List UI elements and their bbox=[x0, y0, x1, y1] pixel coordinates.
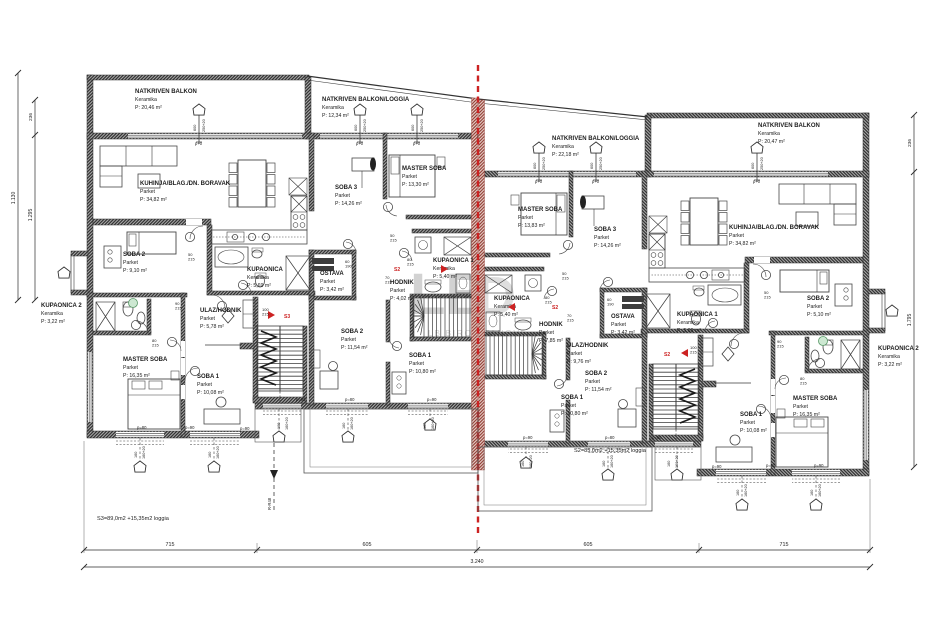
svg-text:SOBA 1: SOBA 1 bbox=[197, 374, 220, 380]
svg-text:215: 215 bbox=[175, 306, 182, 311]
svg-text:160+20: 160+20 bbox=[285, 417, 289, 430]
svg-text:Keramika: Keramika bbox=[247, 275, 269, 281]
svg-text:236: 236 bbox=[907, 139, 913, 147]
svg-text:P: 4,02 m²: P: 4,02 m² bbox=[390, 296, 414, 302]
svg-text:Keramika: Keramika bbox=[135, 97, 157, 103]
svg-text:KUPAONICA 1: KUPAONICA 1 bbox=[433, 258, 474, 264]
svg-text:P: 5,69 m²: P: 5,69 m² bbox=[247, 283, 271, 289]
svg-text:p+0: p+0 bbox=[753, 179, 761, 184]
svg-text:715: 715 bbox=[780, 542, 789, 548]
svg-text:215: 215 bbox=[385, 280, 392, 285]
svg-text:R-R48: R-R48 bbox=[267, 497, 272, 510]
svg-text:600: 600 bbox=[354, 125, 358, 131]
svg-text:Parket: Parket bbox=[197, 382, 213, 388]
svg-text:215: 215 bbox=[188, 257, 195, 262]
svg-text:KUPAONICA 2: KUPAONICA 2 bbox=[878, 346, 919, 352]
svg-text:P: 22,18 m²: P: 22,18 m² bbox=[552, 152, 579, 158]
svg-text:160: 160 bbox=[342, 423, 346, 429]
svg-text:p=90: p=90 bbox=[427, 397, 437, 402]
svg-text:215: 215 bbox=[390, 238, 397, 243]
svg-text:ULAZ/HODNIK: ULAZ/HODNIK bbox=[567, 343, 609, 349]
svg-text:SOBA 2: SOBA 2 bbox=[123, 252, 146, 258]
svg-text:Parket: Parket bbox=[341, 337, 357, 343]
svg-text:Parket: Parket bbox=[807, 304, 823, 310]
svg-text:p+0: p+0 bbox=[413, 141, 421, 146]
svg-text:SOBA 2: SOBA 2 bbox=[341, 329, 364, 335]
svg-text:P: 10,08 m²: P: 10,08 m² bbox=[740, 428, 767, 434]
svg-text:236: 236 bbox=[28, 113, 34, 121]
svg-text:160: 160 bbox=[134, 452, 138, 458]
svg-text:Parket: Parket bbox=[123, 260, 139, 266]
svg-text:P: 34,82 m²: P: 34,82 m² bbox=[140, 197, 167, 203]
svg-text:Parket: Parket bbox=[740, 420, 756, 426]
svg-text:p=90: p=90 bbox=[296, 397, 306, 402]
svg-text:P: 5,78 m²: P: 5,78 m² bbox=[200, 324, 224, 330]
svg-text:160+20: 160+20 bbox=[610, 455, 614, 468]
svg-text:p=90: p=90 bbox=[185, 425, 195, 430]
svg-text:600: 600 bbox=[590, 163, 594, 169]
svg-text:p+0: p+0 bbox=[356, 141, 364, 146]
svg-text:215: 215 bbox=[777, 344, 784, 349]
svg-text:p=90: p=90 bbox=[240, 426, 250, 431]
svg-text:P: 14,26 m²: P: 14,26 m² bbox=[594, 243, 621, 249]
svg-text:OSTAVA: OSTAVA bbox=[320, 271, 344, 277]
svg-text:250+20: 250+20 bbox=[363, 119, 367, 132]
svg-text:p=80: p=80 bbox=[605, 435, 615, 440]
svg-text:P: 20,47 m²: P: 20,47 m² bbox=[758, 139, 785, 145]
svg-text:Parket: Parket bbox=[335, 193, 351, 199]
svg-text:215: 215 bbox=[152, 343, 159, 348]
svg-text:p=80: p=80 bbox=[345, 397, 355, 402]
svg-text:HODNIK: HODNIK bbox=[390, 280, 414, 286]
svg-text:600: 600 bbox=[533, 163, 537, 169]
svg-text:P: 5,69 m²: P: 5,69 m² bbox=[677, 328, 701, 334]
svg-text:Parket: Parket bbox=[200, 316, 216, 322]
svg-text:600: 600 bbox=[411, 125, 415, 131]
svg-text:215: 215 bbox=[262, 312, 269, 317]
svg-text:160+20: 160+20 bbox=[431, 417, 435, 430]
svg-text:160+20: 160+20 bbox=[818, 484, 822, 497]
svg-text:P: 11,54 m²: P: 11,54 m² bbox=[585, 387, 612, 393]
svg-text:SOBA 2: SOBA 2 bbox=[807, 296, 830, 302]
svg-text:160: 160 bbox=[736, 490, 740, 496]
svg-text:P: 3,22 m²: P: 3,22 m² bbox=[878, 362, 902, 368]
svg-text:215: 215 bbox=[407, 262, 414, 267]
svg-text:MASTER SOBA: MASTER SOBA bbox=[123, 357, 168, 363]
svg-text:Keramika: Keramika bbox=[878, 354, 900, 360]
svg-text:160: 160 bbox=[602, 461, 606, 467]
svg-text:Keramika: Keramika bbox=[758, 131, 780, 137]
svg-text:MASTER SOBA: MASTER SOBA bbox=[793, 396, 838, 402]
svg-text:SOBA 1: SOBA 1 bbox=[561, 395, 584, 401]
svg-text:1.795: 1.795 bbox=[907, 314, 913, 327]
svg-text:P: 16,35 m²: P: 16,35 m² bbox=[123, 373, 150, 379]
svg-text:Parket: Parket bbox=[567, 351, 583, 357]
svg-text:KUPAONICA: KUPAONICA bbox=[247, 267, 284, 273]
svg-text:Parket: Parket bbox=[390, 288, 406, 294]
svg-text:S3: S3 bbox=[284, 314, 290, 320]
svg-text:KUHINJA/BLAG./DN. BORAVAK: KUHINJA/BLAG./DN. BORAVAK bbox=[140, 181, 231, 187]
svg-text:215: 215 bbox=[690, 350, 697, 355]
svg-text:p+0: p+0 bbox=[535, 179, 543, 184]
svg-text:Parket: Parket bbox=[561, 403, 577, 409]
svg-text:Parket: Parket bbox=[729, 233, 745, 239]
svg-text:250+20: 250+20 bbox=[542, 157, 546, 170]
svg-text:SOBA 2: SOBA 2 bbox=[585, 371, 608, 377]
svg-text:P: 5,40 m²: P: 5,40 m² bbox=[433, 274, 457, 280]
svg-text:P: 13,30 m²: P: 13,30 m² bbox=[402, 182, 429, 188]
svg-text:P: 10,80 m²: P: 10,80 m² bbox=[561, 411, 588, 417]
svg-text:Keramika: Keramika bbox=[552, 144, 574, 150]
svg-text:S2=85,0m2 +15,35m2 loggia: S2=85,0m2 +15,35m2 loggia bbox=[574, 448, 647, 454]
svg-text:250+20: 250+20 bbox=[420, 119, 424, 132]
svg-text:215: 215 bbox=[562, 276, 569, 281]
svg-text:600: 600 bbox=[193, 125, 197, 131]
svg-text:p+0: p+0 bbox=[592, 179, 600, 184]
svg-text:250+20: 250+20 bbox=[760, 157, 764, 170]
svg-text:160+20: 160+20 bbox=[142, 446, 146, 459]
svg-text:SOBA 1: SOBA 1 bbox=[409, 353, 432, 359]
svg-text:P: 34,82 m²: P: 34,82 m² bbox=[729, 241, 756, 247]
svg-text:OSTAVA: OSTAVA bbox=[611, 314, 635, 320]
svg-text:Parket: Parket bbox=[594, 235, 610, 241]
svg-text:p=90: p=90 bbox=[652, 435, 662, 440]
svg-text:160+20: 160+20 bbox=[744, 484, 748, 497]
svg-text:Parket: Parket bbox=[793, 404, 809, 410]
svg-text:1.130: 1.130 bbox=[11, 192, 17, 205]
svg-text:KUHINJA/BLAG./DN. BORAVAK: KUHINJA/BLAG./DN. BORAVAK bbox=[729, 225, 820, 231]
svg-text:KUPAONICA 1: KUPAONICA 1 bbox=[677, 312, 718, 318]
svg-text:MASTER SOBA: MASTER SOBA bbox=[402, 166, 447, 172]
svg-text:190: 190 bbox=[607, 302, 614, 307]
svg-text:P: 5,10 m²: P: 5,10 m² bbox=[807, 312, 831, 318]
svg-text:605: 605 bbox=[584, 542, 593, 548]
svg-text:Parket: Parket bbox=[611, 322, 627, 328]
svg-text:NATKRIVEN BALKON: NATKRIVEN BALKON bbox=[135, 89, 197, 95]
svg-text:P: 10,80 m²: P: 10,80 m² bbox=[409, 369, 436, 375]
svg-text:Parket: Parket bbox=[539, 330, 555, 336]
svg-text:160: 160 bbox=[667, 461, 671, 467]
svg-text:p+0: p+0 bbox=[195, 141, 203, 146]
svg-text:190: 190 bbox=[345, 264, 352, 269]
svg-text:Parket: Parket bbox=[402, 174, 418, 180]
svg-text:160: 160 bbox=[521, 461, 525, 467]
svg-text:Keramika: Keramika bbox=[322, 105, 344, 111]
svg-text:P: 3,42 m²: P: 3,42 m² bbox=[320, 287, 344, 293]
svg-text:NATKRIVEN BALKON/LOGGIA: NATKRIVEN BALKON/LOGGIA bbox=[552, 136, 640, 142]
svg-text:P: 3,22 m²: P: 3,22 m² bbox=[41, 319, 65, 325]
svg-text:p=90: p=90 bbox=[712, 464, 722, 469]
svg-text:160+20: 160+20 bbox=[216, 446, 220, 459]
svg-text:160+20: 160+20 bbox=[675, 455, 679, 468]
svg-text:P: 9,10 m²: P: 9,10 m² bbox=[123, 268, 147, 274]
svg-text:P: 3,42 m²: P: 3,42 m² bbox=[611, 330, 635, 336]
svg-text:600: 600 bbox=[751, 163, 755, 169]
svg-text:S2: S2 bbox=[664, 352, 670, 358]
svg-text:SOBA 3: SOBA 3 bbox=[335, 185, 358, 191]
svg-text:160: 160 bbox=[208, 452, 212, 458]
svg-text:P: 12,34 m²: P: 12,34 m² bbox=[322, 113, 349, 119]
svg-text:P: 13,83 m²: P: 13,83 m² bbox=[518, 223, 545, 229]
svg-text:P: 5,40 m²: P: 5,40 m² bbox=[494, 312, 518, 318]
svg-text:S2: S2 bbox=[552, 305, 558, 311]
svg-text:250+20: 250+20 bbox=[202, 119, 206, 132]
svg-text:215: 215 bbox=[545, 300, 552, 305]
svg-text:NATKRIVEN BALKON/LOGGIA: NATKRIVEN BALKON/LOGGIA bbox=[322, 97, 410, 103]
svg-text:215: 215 bbox=[764, 295, 771, 300]
svg-text:215: 215 bbox=[567, 318, 574, 323]
svg-text:250+20: 250+20 bbox=[599, 157, 603, 170]
svg-text:715: 715 bbox=[166, 542, 175, 548]
svg-text:KUPAONICA 2: KUPAONICA 2 bbox=[41, 303, 82, 309]
svg-text:160+20: 160+20 bbox=[350, 417, 354, 430]
svg-text:160+20: 160+20 bbox=[529, 455, 533, 468]
svg-text:P: 7,85 m²: P: 7,85 m² bbox=[539, 338, 563, 344]
svg-text:215: 215 bbox=[800, 381, 807, 386]
svg-text:Parket: Parket bbox=[123, 365, 139, 371]
svg-text:ULAZ/HODNIK: ULAZ/HODNIK bbox=[200, 308, 242, 314]
svg-text:SOBA 1: SOBA 1 bbox=[740, 412, 763, 418]
svg-text:p=80: p=80 bbox=[137, 425, 147, 430]
svg-text:P: 16,35 m²: P: 16,35 m² bbox=[793, 412, 820, 418]
svg-text:160: 160 bbox=[423, 423, 427, 429]
svg-text:P: 9,76 m²: P: 9,76 m² bbox=[567, 359, 591, 365]
svg-text:Keramika: Keramika bbox=[41, 311, 63, 317]
svg-text:KUPAONICA: KUPAONICA bbox=[494, 296, 531, 302]
svg-text:Parket: Parket bbox=[585, 379, 601, 385]
svg-text:HODNIK: HODNIK bbox=[539, 322, 563, 328]
svg-text:p=80: p=80 bbox=[766, 463, 776, 468]
svg-text:p=90: p=90 bbox=[814, 463, 824, 468]
svg-text:Parket: Parket bbox=[409, 361, 425, 367]
svg-text:160: 160 bbox=[810, 490, 814, 496]
svg-text:S3=89,0m2 +15,35m2 loggia: S3=89,0m2 +15,35m2 loggia bbox=[97, 516, 170, 522]
svg-text:SOBA 3: SOBA 3 bbox=[594, 227, 617, 233]
svg-text:Parket: Parket bbox=[320, 279, 336, 285]
svg-text:Parket: Parket bbox=[140, 189, 156, 195]
svg-text:Keramika: Keramika bbox=[677, 320, 699, 326]
svg-text:3.240: 3.240 bbox=[471, 559, 484, 565]
svg-text:P: 20,46 m²: P: 20,46 m² bbox=[135, 105, 162, 111]
svg-text:MASTER SOBA: MASTER SOBA bbox=[518, 207, 563, 213]
svg-text:NATKRIVEN BALKON: NATKRIVEN BALKON bbox=[758, 123, 820, 129]
svg-text:p=90: p=90 bbox=[523, 435, 533, 440]
svg-text:Parket: Parket bbox=[518, 215, 534, 221]
svg-text:S2: S2 bbox=[394, 267, 400, 273]
svg-text:1.295: 1.295 bbox=[28, 209, 34, 222]
svg-text:P: 11,54 m²: P: 11,54 m² bbox=[341, 345, 368, 351]
svg-text:P: 14,26 m²: P: 14,26 m² bbox=[335, 201, 362, 207]
svg-text:605: 605 bbox=[363, 542, 372, 548]
svg-text:160: 160 bbox=[277, 423, 281, 429]
svg-text:P: 10,08 m²: P: 10,08 m² bbox=[197, 390, 224, 396]
